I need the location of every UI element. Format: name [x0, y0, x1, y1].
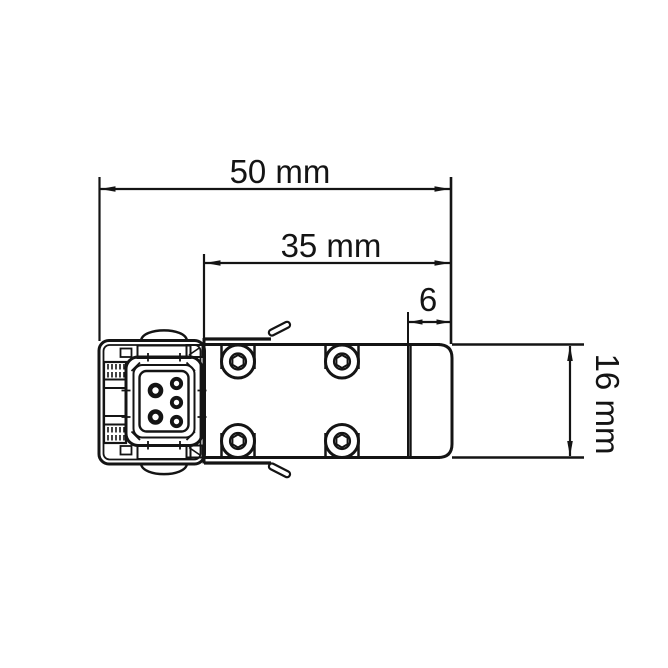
arrowhead-left-icon: [100, 186, 116, 192]
screw-boss-top-right: [326, 345, 359, 379]
arrowhead-down-icon: [567, 441, 573, 457]
locking-tab-bottom: [268, 462, 291, 478]
hatch-marks-top: [108, 364, 124, 378]
screw-hex-socket-icon: [232, 435, 243, 448]
screw-outer-circle: [222, 425, 255, 458]
pin-hole-small-3-center: [174, 419, 179, 424]
technical-drawing-canvas: 50 mm 35 mm 6 16 mm: [0, 0, 668, 668]
dimension-endcap-width: 6: [408, 281, 450, 458]
screw-outer-circle: [326, 425, 359, 458]
pin-hole-small-1-center: [174, 381, 179, 386]
pin-hole-large-2-center: [152, 414, 158, 420]
dimension-label-16mm: 16 mm: [589, 354, 626, 455]
end-cap: [411, 345, 453, 458]
plug-mid-frame: [134, 365, 195, 438]
dimension-label-50mm: 50 mm: [230, 153, 331, 190]
screw-hex-socket-icon: [232, 355, 243, 368]
dimension-drawing: 50 mm 35 mm 6 16 mm: [0, 0, 668, 668]
screw-outer-circle: [326, 345, 359, 378]
clip-top-left: [121, 349, 132, 358]
screw-boss-bottom-right: [326, 425, 359, 458]
clip-bottom-left: [121, 446, 132, 455]
strain-relief-serrations: [104, 362, 126, 443]
connector-plug: [122, 353, 207, 450]
arrowhead-right-icon: [437, 319, 451, 324]
locking-tab-top: [268, 321, 291, 337]
dimension-body-height: 16 mm: [452, 345, 626, 458]
bottom-boot: [138, 446, 191, 459]
hatch-marks-bottom: [108, 427, 124, 441]
bottom-dome: [141, 464, 187, 474]
arrowhead-left-icon: [205, 260, 221, 266]
screw-hex-socket-icon: [336, 435, 347, 448]
pin-hole-small-2-center: [174, 400, 179, 405]
screw-outer-circle: [222, 345, 255, 378]
pin-holes: [148, 377, 183, 428]
dimension-label-35mm: 35 mm: [281, 227, 382, 264]
screw-hex-socket-icon: [336, 355, 347, 368]
top-dome: [141, 330, 187, 340]
dimension-overall-width: 50 mm: [100, 153, 452, 344]
arrowhead-right-icon: [435, 260, 451, 266]
screw-boss-top-left: [222, 345, 255, 379]
arrowhead-up-icon: [567, 346, 573, 362]
screw-boss-bottom-left: [222, 425, 255, 458]
pin-hole-large-1-center: [152, 387, 158, 393]
arrowhead-left-icon: [409, 319, 423, 324]
arrowhead-right-icon: [435, 186, 451, 192]
dimension-label-6: 6: [419, 281, 437, 318]
